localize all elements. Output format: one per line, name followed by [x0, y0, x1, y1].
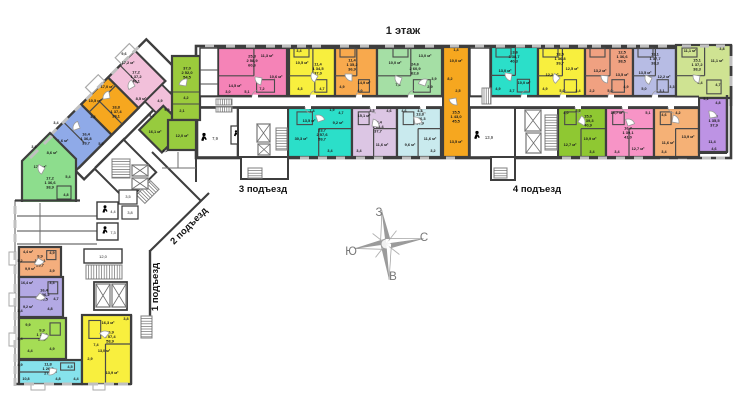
svg-text:Ю: Ю — [345, 246, 357, 258]
svg-text:11,6 м²: 11,6 м² — [376, 142, 389, 147]
svg-text:13,0 м²: 13,0 м² — [499, 68, 513, 73]
svg-text:10,8: 10,8 — [22, 377, 29, 381]
svg-text:4,6: 4,6 — [661, 113, 666, 117]
svg-text:3,8: 3,8 — [123, 317, 128, 321]
svg-text:4,9: 4,9 — [49, 347, 54, 351]
svg-text:11,1 м²: 11,1 м² — [684, 48, 697, 53]
svg-text:5,1: 5,1 — [645, 111, 650, 115]
svg-text:В: В — [389, 271, 397, 283]
svg-text:13,2 м²: 13,2 м² — [594, 68, 608, 73]
svg-text:3,7: 3,7 — [509, 89, 514, 93]
svg-text:8,6 м²: 8,6 м² — [47, 150, 58, 155]
svg-text:39,1: 39,1 — [112, 114, 121, 119]
svg-text:11,4: 11,4 — [708, 139, 716, 144]
svg-text:38,3: 38,3 — [693, 67, 702, 72]
svg-text:3,2: 3,2 — [162, 149, 167, 153]
svg-text:5,0: 5,0 — [559, 89, 564, 93]
svg-text:3,8: 3,8 — [127, 211, 132, 215]
svg-text:4,7: 4,7 — [319, 87, 324, 91]
svg-text:38,5: 38,5 — [618, 59, 627, 64]
svg-text:17,0 м²: 17,0 м² — [101, 84, 115, 89]
svg-text:12,5 м²: 12,5 м² — [566, 66, 580, 71]
svg-text:4,9: 4,9 — [17, 363, 22, 367]
svg-text:10,0 м²: 10,0 м² — [389, 60, 403, 65]
svg-text:9,2 м²: 9,2 м² — [23, 305, 34, 309]
svg-text:40,9: 40,9 — [584, 123, 593, 128]
svg-text:12,2 м²: 12,2 м² — [658, 74, 672, 79]
svg-text:4,7: 4,7 — [53, 297, 58, 301]
svg-text:2,9: 2,9 — [87, 357, 92, 361]
svg-text:4,6: 4,6 — [711, 147, 716, 151]
svg-text:1,9: 1,9 — [329, 108, 334, 112]
svg-text:3,9: 3,9 — [431, 77, 436, 81]
svg-text:4,7: 4,7 — [149, 114, 154, 118]
svg-text:7,3: 7,3 — [110, 231, 115, 235]
svg-text:38,9: 38,9 — [46, 185, 55, 190]
svg-text:14,9 м²: 14,9 м² — [358, 80, 372, 85]
svg-text:4,8: 4,8 — [55, 377, 60, 381]
svg-text:3,5: 3,5 — [125, 195, 130, 199]
svg-text:4,5: 4,5 — [369, 109, 374, 113]
svg-text:4,7: 4,7 — [338, 111, 343, 115]
svg-text:16,4 м²: 16,4 м² — [21, 281, 34, 285]
svg-text:36,9: 36,9 — [348, 67, 357, 72]
svg-text:9,2 м²: 9,2 м² — [333, 120, 344, 125]
svg-text:12,7 м²: 12,7 м² — [564, 142, 578, 147]
svg-text:14,5 м²: 14,5 м² — [229, 83, 243, 88]
svg-text:4,3: 4,3 — [297, 87, 302, 91]
svg-text:4,7: 4,7 — [715, 83, 720, 87]
svg-text:12,0 м²: 12,0 м² — [176, 133, 190, 138]
svg-text:7,2: 7,2 — [259, 87, 264, 91]
svg-text:С: С — [420, 232, 428, 244]
svg-text:39,7: 39,7 — [82, 141, 91, 146]
svg-text:9,9 м²: 9,9 м² — [25, 267, 36, 271]
svg-text:30,3 м²: 30,3 м² — [295, 136, 309, 141]
svg-text:4,4 м²: 4,4 м² — [23, 250, 34, 254]
svg-text:2,1: 2,1 — [179, 109, 184, 113]
svg-text:3,8: 3,8 — [31, 145, 36, 149]
svg-text:4,2: 4,2 — [675, 111, 680, 115]
svg-text:9,9: 9,9 — [164, 108, 169, 112]
svg-text:17,2 м²: 17,2 м² — [122, 60, 136, 65]
svg-text:13,0 м²: 13,0 м² — [98, 349, 111, 353]
svg-text:13,9 м²: 13,9 м² — [106, 370, 120, 375]
svg-text:37,9: 37,9 — [710, 123, 719, 128]
svg-text:15,1 м²: 15,1 м² — [358, 113, 372, 118]
svg-text:5,0: 5,0 — [607, 89, 612, 93]
svg-text:5,2: 5,2 — [17, 259, 22, 263]
svg-text:4,4: 4,4 — [73, 377, 79, 381]
svg-text:3,2: 3,2 — [430, 149, 435, 153]
svg-text:1 подъезд: 1 подъезд — [150, 263, 161, 311]
svg-text:13,9 м²: 13,9 м² — [682, 134, 696, 139]
svg-text:2,2: 2,2 — [589, 89, 594, 93]
svg-text:4,8: 4,8 — [47, 307, 52, 311]
svg-text:4,5: 4,5 — [67, 365, 72, 369]
svg-text:11,3 м²: 11,3 м² — [261, 53, 274, 58]
svg-text:3,3: 3,3 — [669, 85, 674, 89]
svg-text:13,5 м²: 13,5 м² — [639, 70, 653, 75]
svg-text:4,8: 4,8 — [63, 193, 68, 197]
svg-text:4,9: 4,9 — [542, 87, 547, 91]
svg-text:3,1: 3,1 — [659, 89, 664, 93]
svg-text:1 этаж: 1 этаж — [386, 25, 421, 37]
svg-text:11,6 м²: 11,6 м² — [424, 136, 437, 141]
svg-text:3 подъезд: 3 подъезд — [239, 184, 287, 195]
svg-text:10,0 м²: 10,0 м² — [450, 58, 464, 63]
svg-text:9,9: 9,9 — [25, 323, 30, 327]
svg-text:5,1: 5,1 — [244, 90, 249, 94]
svg-text:2,5: 2,5 — [455, 89, 460, 93]
svg-text:3,4: 3,4 — [17, 309, 23, 313]
svg-text:9,6: 9,6 — [121, 52, 126, 56]
svg-text:13,9: 13,9 — [485, 135, 494, 140]
svg-text:10,9 м²: 10,9 м² — [584, 136, 598, 141]
svg-text:4,9: 4,9 — [623, 85, 628, 89]
svg-text:59,7: 59,7 — [318, 137, 327, 142]
svg-text:4,2: 4,2 — [183, 96, 188, 100]
svg-text:12,0: 12,0 — [99, 254, 108, 259]
svg-text:4,4: 4,4 — [110, 210, 115, 214]
svg-text:4,0: 4,0 — [563, 111, 568, 115]
svg-text:5,4: 5,4 — [17, 337, 23, 341]
svg-text:4,9: 4,9 — [49, 251, 54, 255]
svg-text:4,6: 4,6 — [386, 109, 391, 113]
svg-text:7,9: 7,9 — [212, 136, 218, 141]
svg-text:4,3: 4,3 — [417, 109, 422, 113]
svg-text:16,3 м²: 16,3 м² — [102, 320, 116, 325]
svg-text:62,6: 62,6 — [411, 71, 420, 76]
svg-text:40,3: 40,3 — [510, 59, 519, 64]
svg-text:3,3: 3,3 — [49, 281, 54, 285]
svg-text:9,6 м²: 9,6 м² — [405, 142, 416, 147]
svg-text:41,0: 41,0 — [624, 135, 633, 140]
svg-text:8,5 м²: 8,5 м² — [136, 96, 147, 101]
svg-text:10,5 м²: 10,5 м² — [89, 98, 103, 103]
svg-text:3,0: 3,0 — [225, 90, 230, 94]
svg-text:11,1 м²: 11,1 м² — [711, 58, 724, 63]
svg-text:16,7 м²: 16,7 м² — [611, 110, 625, 115]
svg-text:10,6 м²: 10,6 м² — [270, 74, 284, 79]
svg-text:З: З — [376, 207, 383, 219]
svg-text:11,6 м²: 11,6 м² — [662, 140, 675, 145]
svg-text:4,9: 4,9 — [157, 99, 162, 103]
svg-text:4,9: 4,9 — [339, 85, 344, 89]
svg-text:39,7: 39,7 — [556, 61, 565, 66]
svg-text:5,0: 5,0 — [641, 87, 646, 91]
svg-text:5,1: 5,1 — [703, 97, 708, 101]
svg-text:3,9: 3,9 — [49, 269, 54, 273]
svg-text:4,9: 4,9 — [495, 87, 500, 91]
svg-text:38,3: 38,3 — [651, 61, 660, 66]
svg-text:13,5 м²: 13,5 м² — [450, 139, 464, 144]
svg-text:16,1 м²: 16,1 м² — [149, 129, 163, 134]
svg-text:4,4: 4,4 — [27, 349, 33, 353]
svg-text:13,0 м²: 13,0 м² — [419, 53, 433, 58]
svg-text:13,5 м²: 13,5 м² — [616, 72, 630, 77]
svg-text:12,7 м²: 12,7 м² — [632, 146, 646, 151]
svg-text:58,9: 58,9 — [106, 339, 115, 344]
svg-text:4,8: 4,8 — [715, 101, 720, 105]
svg-text:5,5: 5,5 — [98, 142, 103, 146]
svg-text:13,5 м²: 13,5 м² — [303, 118, 317, 123]
svg-text:60,6: 60,6 — [248, 63, 257, 68]
svg-text:2,9: 2,9 — [427, 84, 433, 89]
svg-text:45,5: 45,5 — [452, 119, 461, 124]
svg-text:37,7: 37,7 — [374, 129, 383, 134]
svg-text:4 подъезд: 4 подъезд — [513, 184, 561, 195]
svg-text:5,9: 5,9 — [575, 109, 580, 113]
svg-text:10,0 м²: 10,0 м² — [518, 80, 532, 85]
svg-text:8,2: 8,2 — [447, 77, 452, 81]
svg-text:4,0: 4,0 — [357, 89, 362, 93]
svg-text:4,6: 4,6 — [401, 109, 406, 113]
svg-text:10,5 м²: 10,5 м² — [296, 60, 310, 65]
